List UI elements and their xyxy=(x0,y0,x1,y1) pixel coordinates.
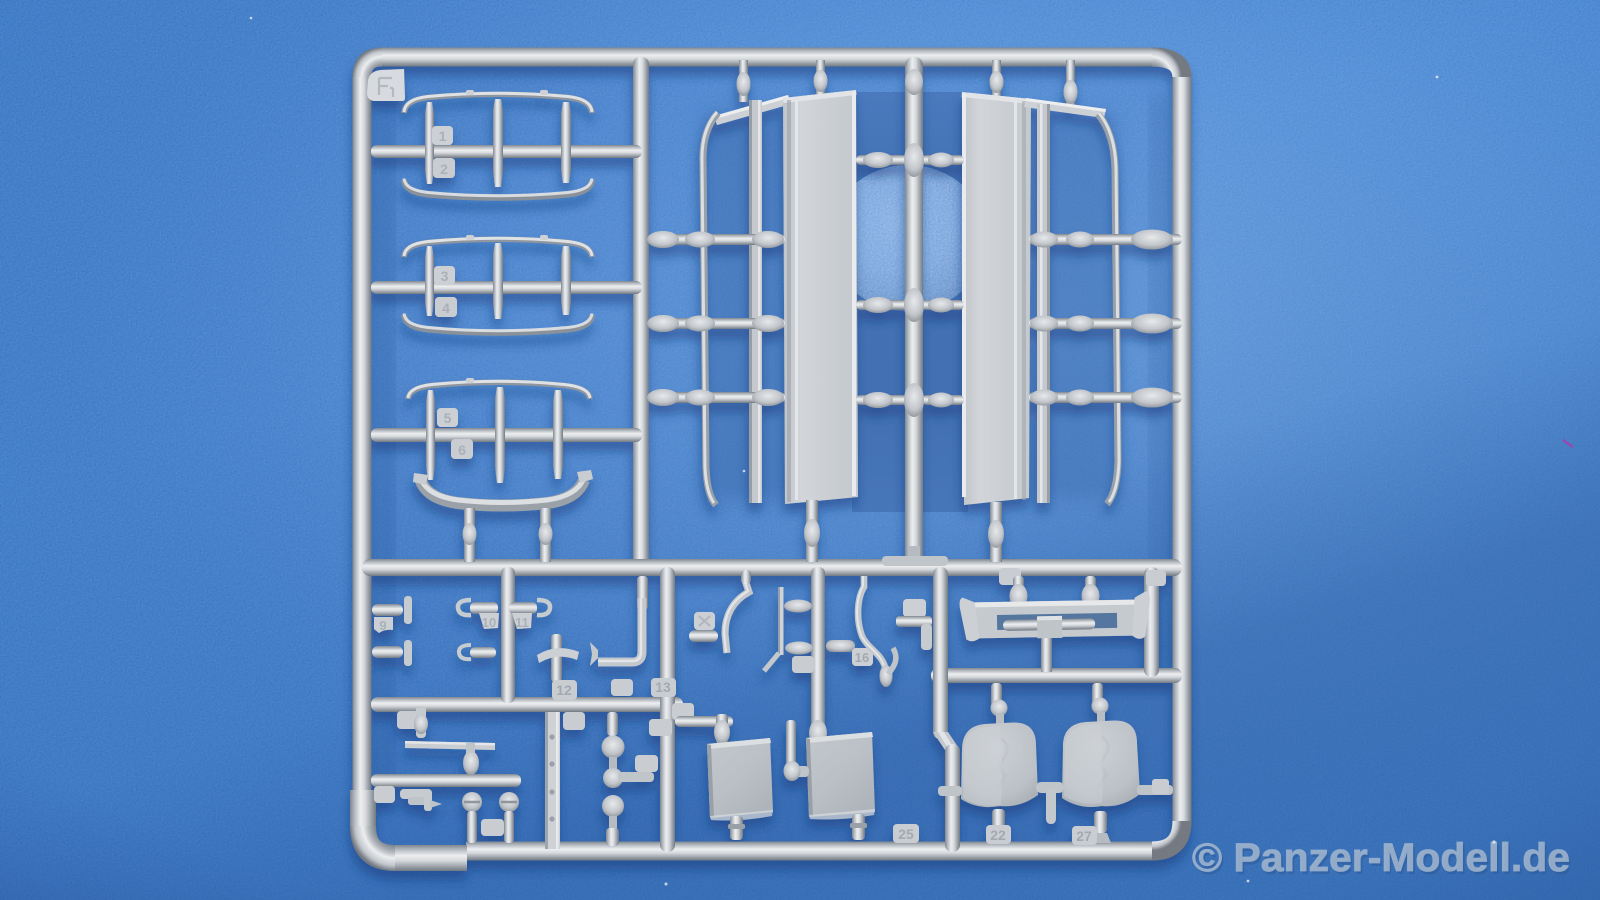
svg-text:11: 11 xyxy=(515,615,529,630)
svg-text:10: 10 xyxy=(482,615,496,630)
svg-text:© Panzer-Modell.de: © Panzer-Modell.de xyxy=(1192,836,1570,880)
svg-text:2: 2 xyxy=(440,161,448,177)
svg-text:5: 5 xyxy=(444,410,452,426)
svg-text:3: 3 xyxy=(441,268,449,284)
svg-text:16: 16 xyxy=(855,650,869,665)
svg-text:27: 27 xyxy=(1076,828,1092,844)
svg-text:1: 1 xyxy=(439,128,447,144)
svg-text:13: 13 xyxy=(655,679,671,695)
svg-text:25: 25 xyxy=(898,826,914,842)
svg-text:4: 4 xyxy=(442,300,450,316)
svg-text:22: 22 xyxy=(990,827,1006,843)
svg-text:12: 12 xyxy=(556,682,572,698)
svg-text:9: 9 xyxy=(379,618,386,633)
svg-text:6: 6 xyxy=(458,442,466,458)
